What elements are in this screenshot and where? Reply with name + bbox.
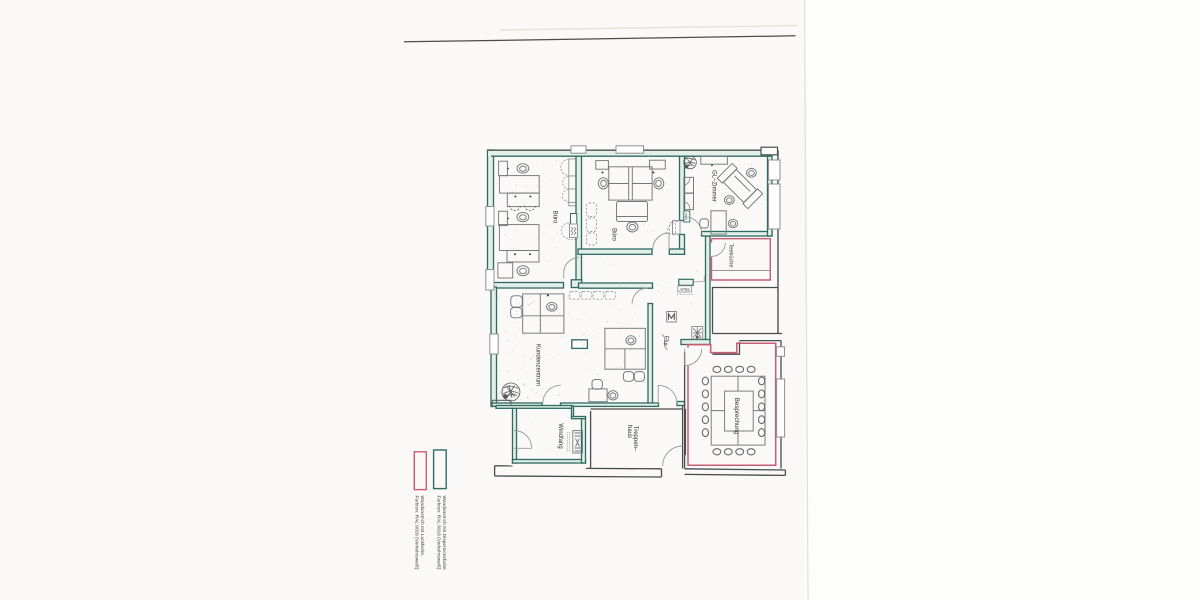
- svg-text:AP55: AP55: [679, 287, 690, 292]
- svg-text:Kundenzentrum: Kundenzentrum: [535, 344, 541, 386]
- svg-text:Wandanstrich mit Dispersionsfa: Wandanstrich mit Dispersionsfarbe: [441, 496, 447, 571]
- svg-text:Büro: Büro: [552, 211, 558, 224]
- svg-text:haus: haus: [626, 425, 632, 438]
- svg-text:Flur: Flur: [662, 335, 669, 346]
- svg-text:Teeküche: Teeküche: [728, 244, 734, 268]
- svg-text:Büro: Büro: [611, 228, 617, 241]
- svg-text:Wandanstrich mit Lackfarbe,: Wandanstrich mit Lackfarbe,: [419, 496, 425, 557]
- svg-text:Besprechung: Besprechung: [733, 398, 740, 435]
- svg-text:GL–Zimmer: GL–Zimmer: [711, 170, 717, 202]
- svg-text:Windfang: Windfang: [557, 423, 563, 448]
- svg-text:Farbton: RAL 9016 (Verkehrswei: Farbton: RAL 9016 (Verkehrsweiß): [435, 496, 441, 570]
- svg-text:Farbton: RAL 9016 (Verkehrswei: Farbton: RAL 9016 (Verkehrsweiß): [414, 496, 420, 570]
